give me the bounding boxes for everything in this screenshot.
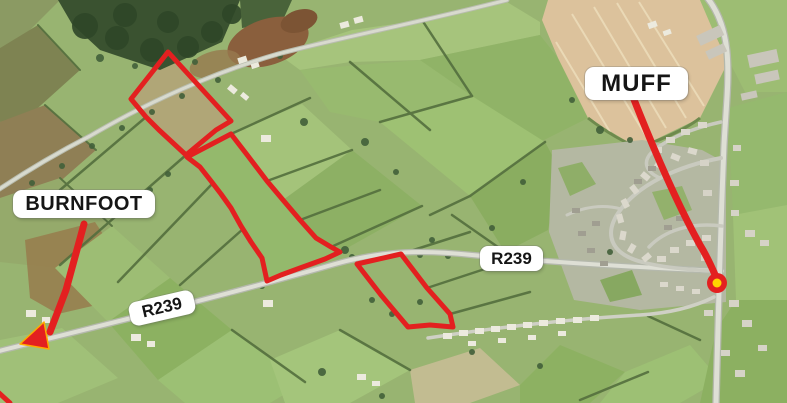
road-label-r239-east: R239 xyxy=(480,246,543,271)
aerial-location-map: BURNFOOT MUFF R239 R239 xyxy=(0,0,787,403)
label-muff: MUFF xyxy=(585,67,688,100)
label-burnfoot: BURNFOOT xyxy=(13,190,155,218)
muff-location-marker-dot xyxy=(713,279,722,288)
